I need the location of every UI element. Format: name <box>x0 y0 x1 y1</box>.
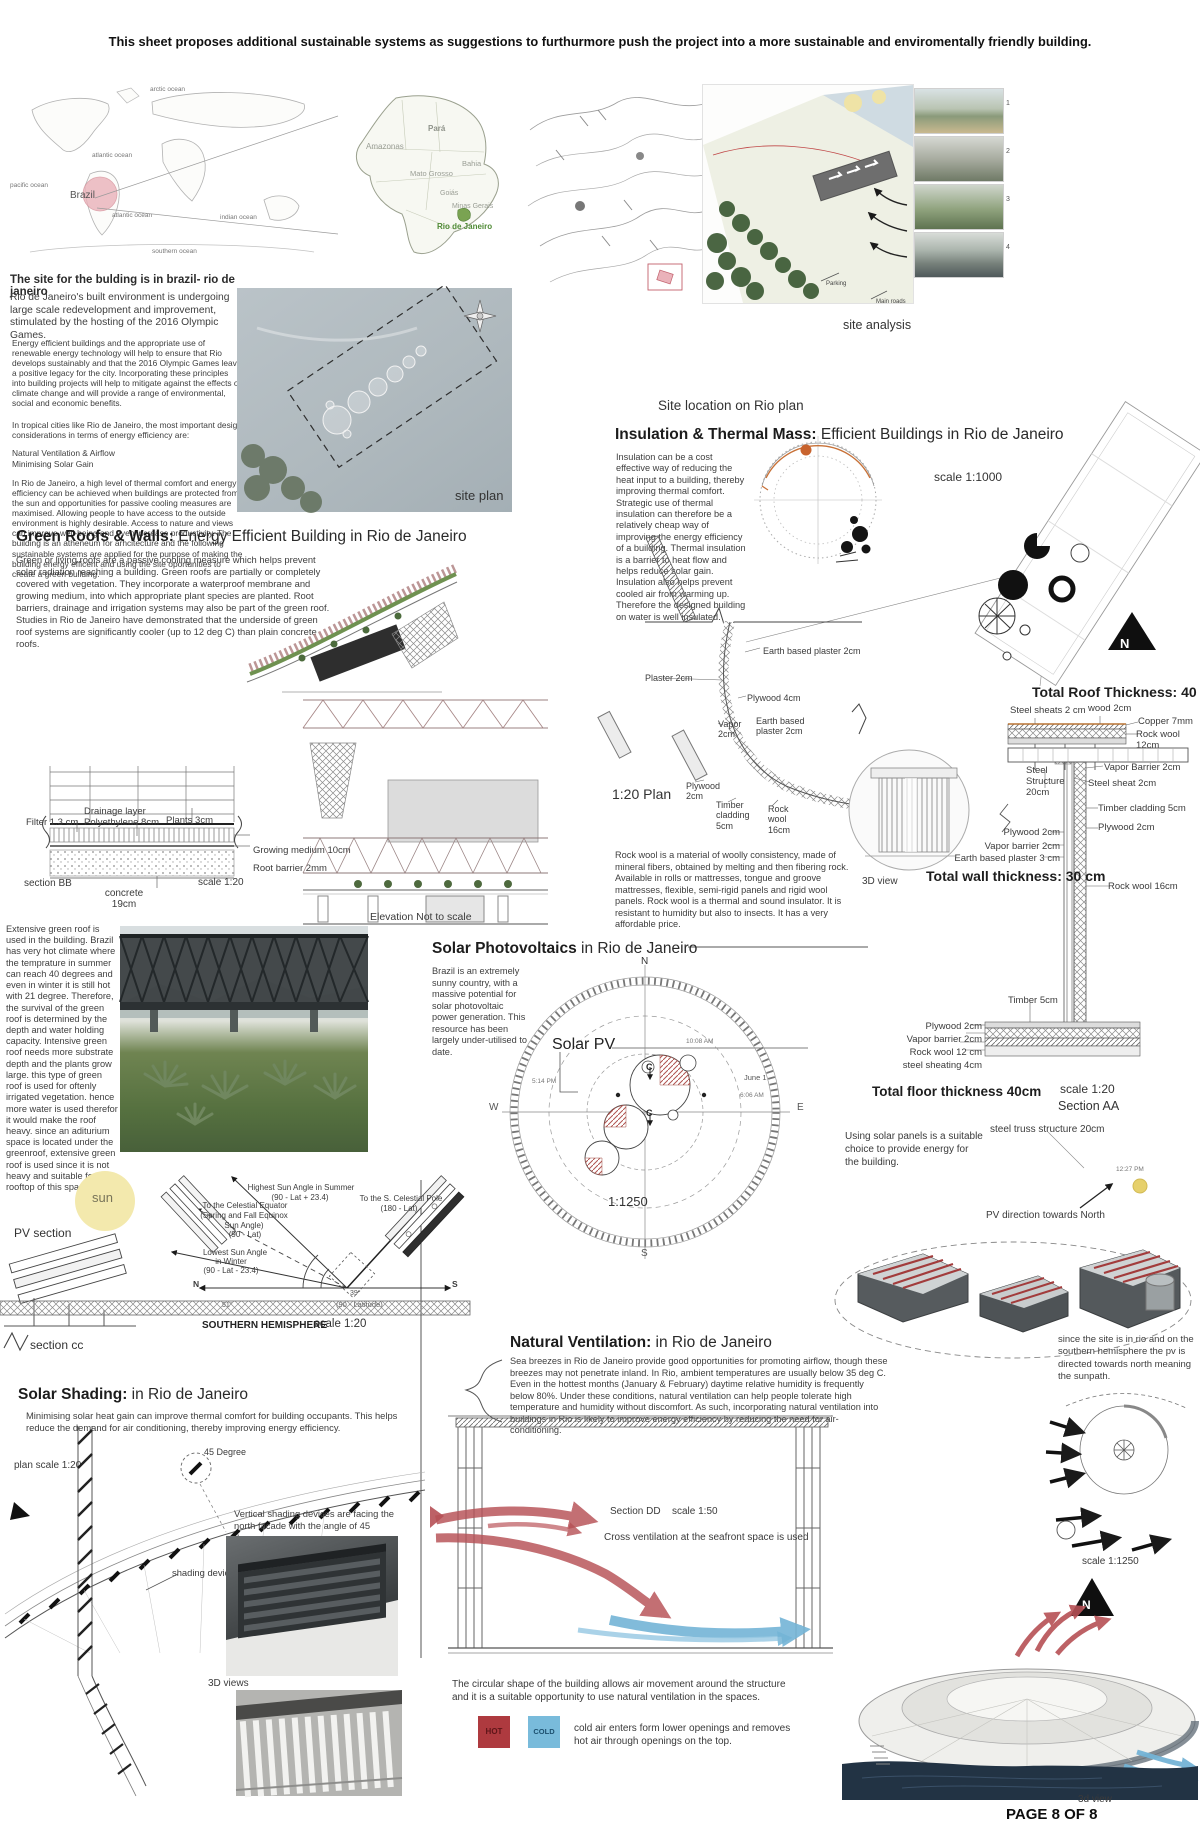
north-letter-top: N <box>1120 636 1129 651</box>
angle-pole-2: (180 - Lat) <box>366 1204 432 1213</box>
angle-highest-1: Highest Sun Angle in Summer <box>225 1183 377 1192</box>
intro-p4a: Natural Ventilation & Airflow <box>12 448 242 458</box>
rockwool-note: Rock wool is a material of woolly consis… <box>615 850 853 931</box>
shading-3d-views-caption: 3D views <box>208 1678 249 1689</box>
sun-dot <box>1133 1179 1147 1193</box>
sunpath-n: N <box>641 956 648 967</box>
shading-heading: Solar Shading: in Rio de Janeiro <box>18 1386 248 1404</box>
wall-plywood-right: Plywood 2cm <box>1098 823 1155 834</box>
hot-legend: HOT <box>478 1716 510 1748</box>
sunpath-s: S <box>641 1248 648 1259</box>
extensive-note: Extensive green roof is used in the buil… <box>6 924 118 1193</box>
analysis-photo-4 <box>914 232 1004 278</box>
photo-number: 4 <box>1006 244 1010 252</box>
angle-s: S <box>452 1280 458 1290</box>
cold-legend-label: COLD <box>528 1716 560 1748</box>
panel-note: Using solar panels is a suitable choice … <box>845 1130 983 1169</box>
rio-plan-map <box>520 86 710 304</box>
floor-steel-sheating: steel sheating 4cm <box>884 1061 982 1072</box>
site-analysis-caption: site analysis <box>843 318 911 332</box>
building-photo <box>120 926 368 1152</box>
ocean-label: indian ocean <box>220 214 257 221</box>
wall-plywood-left: Plywood 2cm <box>984 828 1060 839</box>
sunpath-c2: C <box>646 1108 653 1118</box>
wind-rose-diagram <box>748 428 888 568</box>
angle-n: N <box>193 1280 199 1290</box>
angle-equator-4: (90 - Lat) <box>218 1230 272 1239</box>
wall-timber: Timber cladding 5cm <box>1098 804 1186 815</box>
north-compass-top <box>1106 610 1158 652</box>
cold-air-note: cold air enters form lower openings and … <box>574 1722 792 1748</box>
layer-concrete: concrete 19cm <box>100 888 148 911</box>
wallplan-timber: Timber cladding 5cm <box>716 800 762 831</box>
site-marker <box>657 270 673 284</box>
state-label: Mato Grosso <box>410 170 453 179</box>
ocean-label: pacific ocean <box>10 182 48 189</box>
roof-copper: Copper 7mm <box>1138 717 1193 728</box>
sunpath-c1: C <box>646 1062 653 1072</box>
photo-number: 1 <box>1006 100 1010 108</box>
rio-label: Rio de Janeiro <box>437 222 492 231</box>
wallplan-plywood4: Plywood 4cm <box>747 693 801 703</box>
hot-legend-label: HOT <box>478 1716 510 1748</box>
wind-arrows-sketch <box>1046 1388 1198 1578</box>
compass-icon <box>464 300 496 332</box>
brazil-label: Brazil <box>70 190 95 201</box>
wall-3d-view <box>845 748 980 883</box>
analysis-note: Parking <box>826 281 846 288</box>
site-analysis-collage <box>702 84 914 304</box>
louver-render-art <box>236 1690 402 1796</box>
wall-steel-sheat: Steel sheat 2cm <box>1088 779 1156 790</box>
collage-art <box>703 85 913 303</box>
shading-heading-rest: in Rio de Janeiro <box>127 1386 248 1403</box>
truss-label: steel truss structure 20cm <box>990 1124 1104 1135</box>
ocean-label: arctic ocean <box>150 86 185 93</box>
pv-section-scale: scale 1:20 <box>314 1318 366 1330</box>
analysis-photo-3 <box>914 184 1004 230</box>
ocean-label: southern ocean <box>152 248 197 255</box>
sunpath-time-1: 10:08 AM <box>686 1038 713 1045</box>
noon-label: 12:27 PM <box>1116 1166 1144 1173</box>
cross-ventilation-note: Cross ventilation at the seafront space … <box>604 1532 834 1543</box>
state-label: Minas Gerais <box>452 203 493 211</box>
building-3d-caption: 3d view <box>1078 1794 1112 1805</box>
sun-position-dot <box>801 445 812 456</box>
rio-plan-caption: Site location on Rio plan <box>658 398 804 413</box>
angle-pole-1: To the S. Celestial Pole <box>345 1194 457 1203</box>
pv-building-mid <box>980 1276 1068 1332</box>
wallplan-earth-top: Earth based plaster 2cm <box>763 646 873 656</box>
wallplan-plaster: Plaster 2cm <box>645 673 693 683</box>
analysis-note: Main roads <box>876 299 906 306</box>
wall-3d-caption: 3D view <box>862 876 898 887</box>
floor-detail-title: Total floor thickness 40cm <box>872 1084 1041 1099</box>
wall-vapor-top: Vapor Barrier 2cm <box>1104 763 1180 774</box>
wall-steel-structure: Steel Structure 20cm <box>1026 766 1078 798</box>
analysis-photo-1 <box>914 88 1004 134</box>
wallplan-rockwool: Rock wool 16cm <box>768 804 802 835</box>
wallplan-earth-mid: Earth based plaster 2cm <box>756 716 814 737</box>
photo-number: 2 <box>1006 148 1010 156</box>
green-roofs-heading-bold: Green Roofs & Walls: <box>16 528 174 545</box>
circular-shape-note: The circular shape of the building allow… <box>452 1678 798 1704</box>
solar-pv-label: Solar PV <box>552 1036 615 1054</box>
ocean-label: atlantic ocean <box>112 212 152 219</box>
pv-building-left <box>858 1254 968 1322</box>
shading-heading-bold: Solar Shading: <box>18 1386 127 1403</box>
photo-art <box>120 926 368 1152</box>
wallplan-vapor: Vapor 2cm <box>718 719 752 740</box>
wallplan-scale: 1:20 Plan <box>612 786 671 802</box>
layer-plants: Plants 3cm <box>166 816 213 827</box>
ventilation-heading: Natural Ventilation: in Rio de Janeiro <box>510 1334 772 1352</box>
page-title: This sheet proposes additional sustainab… <box>60 34 1140 49</box>
sunpath-time-3: 6:06 AM <box>740 1092 764 1099</box>
pv-direction-label: PV direction towards North <box>986 1210 1105 1221</box>
brazil-map <box>336 90 514 268</box>
shading-3d-render <box>226 1536 398 1676</box>
wind-scale: scale 1:1250 <box>1082 1556 1139 1567</box>
sunpath-time-4: 5:14 PM <box>532 1078 556 1085</box>
tilted-masterplan <box>985 398 1197 708</box>
shading-plan-strip <box>50 1426 150 1798</box>
intro-p2: Energy efficient buildings and the appro… <box>12 338 242 409</box>
angle-equator-3: Sun Angle) <box>212 1221 276 1230</box>
state-label: Bahia <box>462 160 481 169</box>
circular-building-3d <box>842 1596 1198 1800</box>
layer-section-bb: section BB <box>24 878 72 889</box>
sunpath-e: E <box>797 1102 804 1113</box>
angle-lowest-3: (90 - Lat - 23.4) <box>184 1266 278 1275</box>
shading-render-art <box>226 1536 398 1676</box>
site-plan-image <box>237 288 512 512</box>
ventilation-heading-rest: in Rio de Janeiro <box>651 1334 772 1351</box>
sunpath-w: W <box>489 1102 498 1113</box>
ocean-label: atlantic ocean <box>92 152 132 159</box>
site-plan-caption: site plan <box>455 488 503 503</box>
world-map <box>12 82 332 267</box>
sunpath-june: June 1 <box>744 1074 767 1083</box>
floor-section-aa: Section AA <box>1058 1099 1119 1113</box>
pv-building-right <box>1080 1250 1180 1328</box>
section-dd-scale: scale 1:50 <box>672 1506 718 1517</box>
section-cc-label: section cc <box>30 1338 83 1352</box>
layer-drainage: Drainage layer Polyethylene 8cm <box>84 807 172 829</box>
angle-lowest-1: Lowest Sun Angle <box>188 1248 282 1257</box>
intro-p1: Rio de Janeiro's built environment is un… <box>10 292 244 342</box>
intro-p3: In tropical cities like Rio de Janeiro, … <box>12 420 242 440</box>
floor-rockwool: Rock wool 12 cm <box>884 1048 982 1059</box>
layer-filter: Filter 1.3 cm <box>26 818 78 829</box>
section-dd-label: Section DD <box>610 1506 661 1517</box>
state-label: Amazonas <box>366 142 404 151</box>
poster-canvas: This sheet proposes additional sustainab… <box>0 0 1200 1838</box>
ventilation-heading-bold: Natural Ventilation: <box>510 1334 651 1351</box>
photo-number: 3 <box>1006 196 1010 204</box>
angle-equator-2: (Spring and Fall Equinox <box>184 1211 304 1220</box>
hemisphere-note: since the site is in rio and on the sout… <box>1058 1334 1196 1383</box>
louver-render <box>236 1690 402 1796</box>
floor-plywood: Plywood 2cm <box>906 1022 982 1033</box>
elevation-caption: Elevation Not to scale <box>370 912 472 924</box>
green-roof-render <box>242 542 462 707</box>
angle-equator-1: To the Celestial Equator <box>190 1201 300 1210</box>
state-label: Pará <box>428 124 445 133</box>
layer-scale: scale 1:20 <box>198 877 244 888</box>
angle-lowest-2: in Winter <box>202 1257 260 1266</box>
site-plan-drawing <box>237 288 512 512</box>
pv-direction-arrow <box>1080 1184 1112 1208</box>
southern-hemisphere-label: SOUTHERN HEMISPHERE <box>202 1320 327 1331</box>
page-number: PAGE 8 OF 8 <box>1006 1806 1097 1823</box>
sunpath-scale: 1:1250 <box>608 1194 648 1209</box>
elevation-render <box>298 688 556 928</box>
floor-vapor: Vapor barrier 2cm <box>884 1035 982 1046</box>
sun-bubble-label: sun <box>92 1190 113 1205</box>
analysis-photo-2 <box>914 136 1004 182</box>
intro-p4b: Minimising Solar Gain <box>12 459 242 469</box>
state-label: Goiás <box>440 190 458 198</box>
ground-hatch <box>0 1297 470 1321</box>
cold-legend: COLD <box>528 1716 560 1748</box>
wallplan-plywood2: Plywood 2cm <box>686 781 732 802</box>
wall-rockwool: Rock wool 16cm <box>1108 882 1178 893</box>
floor-scale: scale 1:20 <box>1060 1082 1115 1096</box>
